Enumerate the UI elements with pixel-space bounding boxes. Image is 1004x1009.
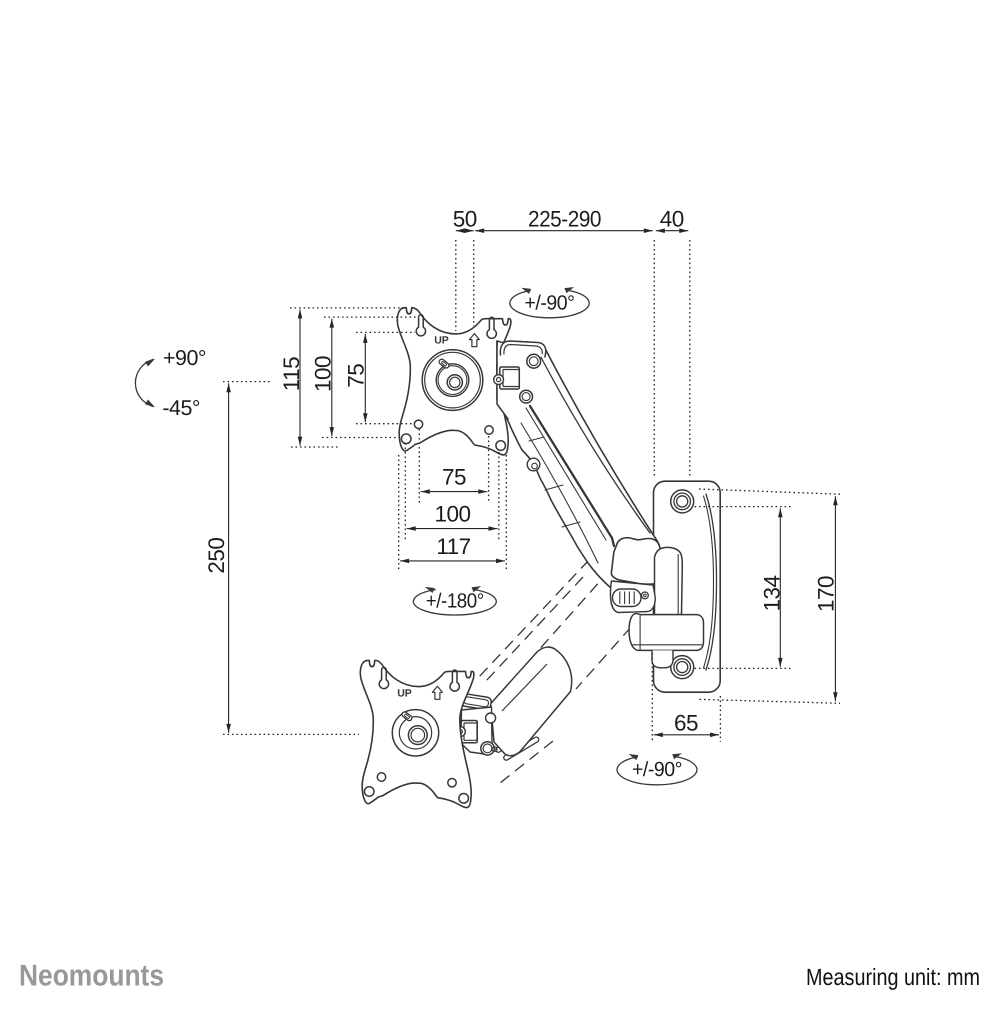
svg-text:65: 65 [674, 710, 698, 735]
svg-text:100: 100 [434, 502, 470, 527]
svg-text:225-290: 225-290 [528, 207, 601, 232]
svg-text:UP: UP [397, 687, 412, 699]
svg-text:75: 75 [442, 465, 466, 490]
svg-text:-45°: -45° [162, 396, 200, 420]
svg-text:+/-180°: +/-180° [426, 589, 484, 612]
svg-text:170: 170 [814, 576, 839, 612]
svg-text:+/-90°: +/-90° [525, 291, 575, 314]
svg-text:Measuring unit: mm: Measuring unit: mm [806, 964, 980, 990]
svg-text:134: 134 [760, 575, 785, 611]
svg-text:+/-90°: +/-90° [632, 758, 682, 781]
svg-text:UP: UP [434, 335, 449, 347]
svg-text:40: 40 [660, 207, 684, 232]
svg-text:250: 250 [204, 538, 229, 574]
svg-text:+90°: +90° [163, 346, 206, 370]
svg-text:75: 75 [343, 364, 368, 388]
svg-text:115: 115 [279, 357, 304, 391]
svg-text:50: 50 [453, 207, 477, 232]
svg-text:117: 117 [436, 534, 470, 559]
svg-text:Neomounts: Neomounts [19, 960, 164, 993]
svg-text:100: 100 [310, 356, 335, 392]
